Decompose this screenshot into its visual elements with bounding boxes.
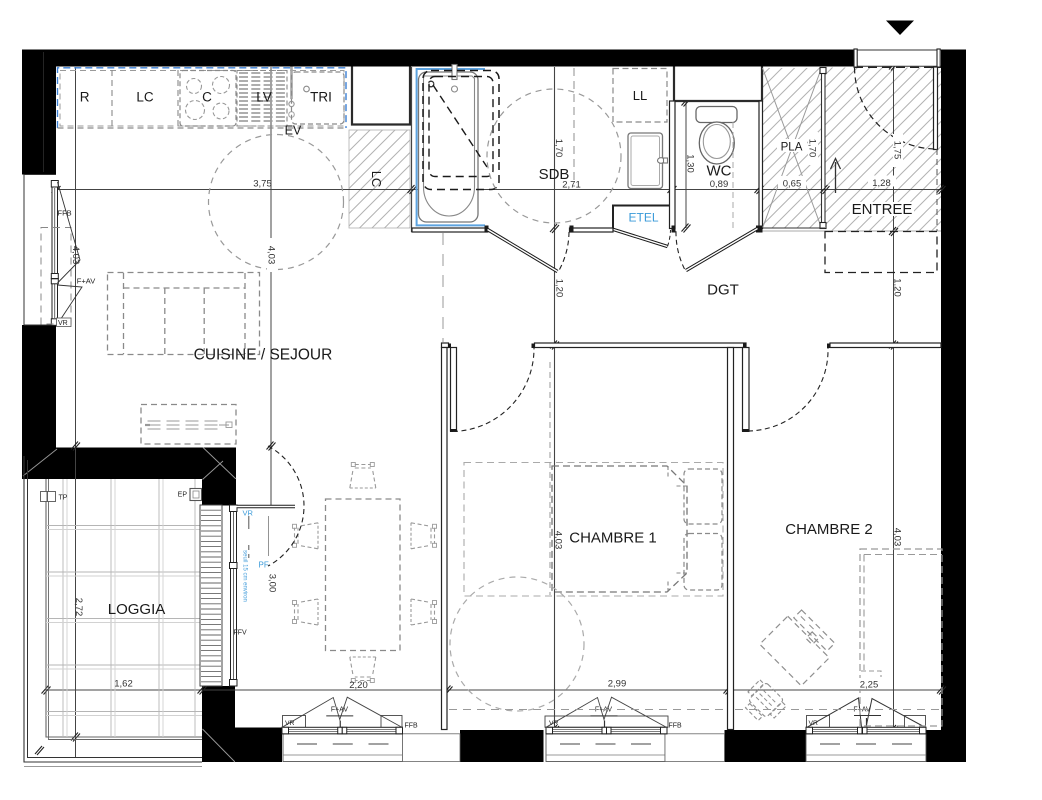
- svg-text:ETEL: ETEL: [628, 211, 658, 225]
- svg-text:1,62: 1,62: [114, 679, 133, 690]
- svg-text:VR: VR: [809, 720, 819, 727]
- svg-text:DGT: DGT: [707, 282, 739, 299]
- svg-text:PLA: PLA: [781, 142, 803, 154]
- svg-text:WC: WC: [707, 163, 732, 180]
- svg-text:1,75: 1,75: [892, 141, 903, 160]
- svg-text:LL: LL: [633, 88, 647, 103]
- svg-text:VR: VR: [243, 509, 254, 518]
- svg-text:F+AV: F+AV: [331, 707, 349, 714]
- svg-text:VR: VR: [549, 720, 559, 727]
- svg-text:4,03: 4,03: [553, 531, 564, 550]
- svg-text:LOGGIA: LOGGIA: [108, 601, 166, 618]
- svg-text:1,28: 1,28: [872, 178, 891, 189]
- svg-text:CUISINE / SEJOUR: CUISINE / SEJOUR: [194, 347, 333, 364]
- svg-text:4,03: 4,03: [266, 246, 277, 265]
- svg-text:2,71: 2,71: [562, 180, 581, 191]
- svg-text:0,89: 0,89: [710, 179, 729, 190]
- svg-text:CHAMBRE 2: CHAMBRE 2: [785, 521, 873, 538]
- svg-text:VR: VR: [285, 720, 295, 727]
- svg-text:VR: VR: [58, 320, 68, 327]
- svg-text:FFB: FFB: [669, 723, 683, 730]
- svg-text:F+AV: F+AV: [77, 277, 95, 286]
- svg-text:FFB: FFB: [405, 723, 419, 730]
- svg-text:3,75: 3,75: [253, 179, 272, 190]
- svg-text:EV: EV: [285, 124, 302, 138]
- svg-text:R: R: [80, 90, 90, 105]
- svg-text:FFB: FFB: [58, 209, 72, 218]
- svg-text:4,03: 4,03: [891, 528, 902, 547]
- svg-text:1,20: 1,20: [554, 279, 565, 298]
- svg-text:TP: TP: [59, 495, 68, 502]
- svg-text:CHAMBRE 1: CHAMBRE 1: [569, 530, 657, 547]
- svg-text:2,20: 2,20: [349, 680, 368, 691]
- svg-text:EP: EP: [178, 492, 188, 499]
- svg-text:TRI: TRI: [310, 90, 332, 105]
- svg-text:ENTREE: ENTREE: [852, 201, 913, 218]
- svg-text:FFV: FFV: [234, 630, 248, 637]
- svg-text:LC: LC: [369, 171, 384, 188]
- svg-text:2,99: 2,99: [608, 679, 627, 690]
- svg-text:2,72: 2,72: [73, 598, 84, 617]
- svg-text:4,03: 4,03: [70, 246, 81, 265]
- svg-text:seuil 15 cm environ: seuil 15 cm environ: [242, 550, 248, 602]
- svg-text:PF: PF: [259, 561, 269, 570]
- svg-text:LC: LC: [136, 90, 154, 105]
- svg-text:1,70: 1,70: [553, 139, 564, 158]
- svg-text:1,20: 1,20: [892, 278, 903, 297]
- svg-text:2,25: 2,25: [860, 680, 879, 691]
- svg-text:LV: LV: [256, 90, 272, 105]
- svg-text:0,65: 0,65: [783, 179, 802, 190]
- svg-text:1,30: 1,30: [685, 154, 696, 173]
- svg-text:3,00: 3,00: [267, 574, 278, 593]
- svg-text:C: C: [202, 90, 212, 105]
- svg-text:1,70: 1,70: [807, 139, 818, 158]
